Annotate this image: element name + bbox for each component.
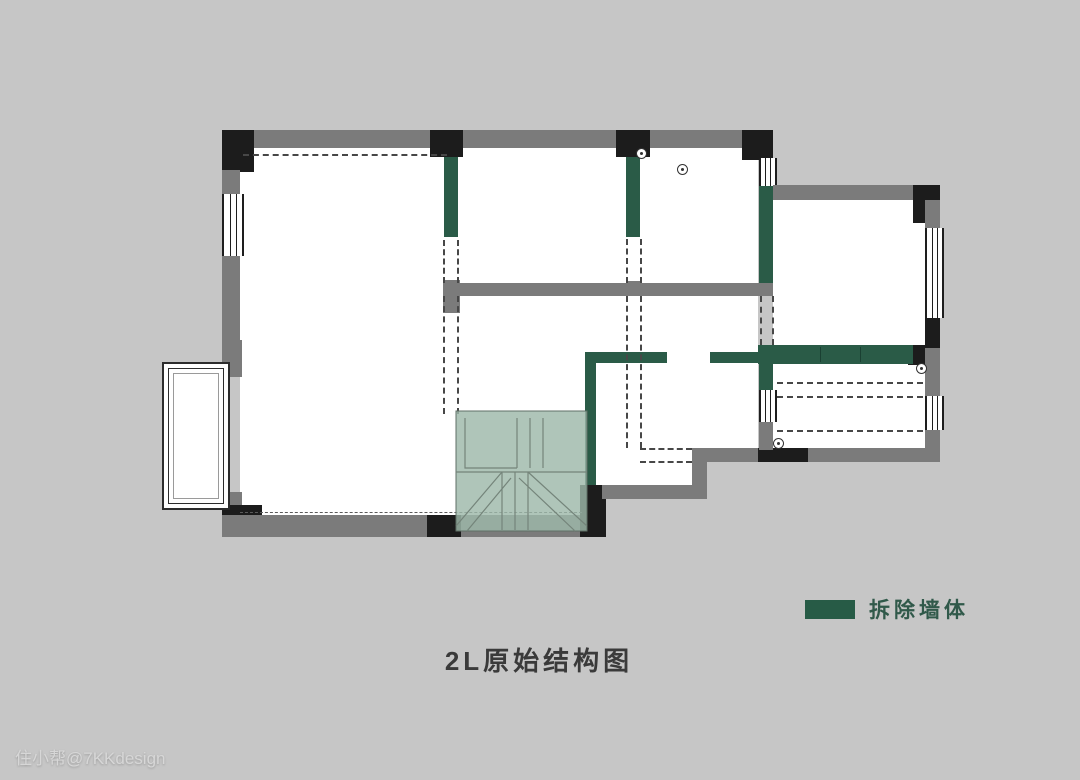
opening-dashed-1a — [443, 240, 445, 283]
floor-drain-icon — [677, 164, 688, 175]
floor-drain-icon — [916, 363, 927, 374]
demolish-wall-4 — [758, 345, 913, 364]
opening-dashed-2c — [626, 296, 628, 448]
step-wall-1 — [602, 485, 693, 499]
demolish-wall-swatch — [805, 600, 855, 619]
right-room-fill — [773, 200, 925, 448]
window-balcony-left — [759, 390, 777, 422]
legend-label: 拆除墙体 — [869, 594, 969, 624]
exterior-wall-top — [222, 130, 770, 148]
balcony-step-line-1 — [777, 382, 923, 384]
floor-plan-canvas: 拆除墙体 2L原始结构图 住小帮@7KKdesign — [0, 0, 1080, 780]
opening-dashed-1b — [457, 240, 459, 283]
right-wing-wall-top — [773, 185, 915, 200]
step-wall-3 — [705, 448, 760, 462]
interior-wall-main — [443, 283, 773, 296]
window-left — [222, 194, 244, 256]
opening-dashed-4b — [640, 461, 692, 463]
door-threshold — [626, 281, 640, 286]
demolish-wall-7 — [710, 352, 773, 363]
bay-window — [162, 362, 230, 510]
page-title: 2L原始结构图 — [394, 641, 684, 678]
demolish-wall-1 — [444, 157, 458, 237]
opening-dashed-4a — [640, 448, 692, 450]
exterior-wall-left — [222, 170, 240, 194]
opening-dashed-2d — [640, 296, 642, 448]
demolish-wall-2 — [626, 157, 640, 237]
watermark: 住小帮@7KKdesign — [15, 744, 166, 769]
column-right-mid — [925, 318, 940, 348]
window-balcony-right — [925, 396, 944, 430]
balcony-wall-left — [759, 422, 773, 450]
opening-dashed-2b — [640, 239, 642, 283]
column-balcony-left — [758, 448, 810, 462]
column-top-1 — [430, 130, 463, 157]
opening-dashed-2a — [626, 239, 628, 283]
balcony-wall-bottom — [808, 448, 940, 462]
opening-dashed-top — [243, 154, 447, 156]
opening-dashed-3a — [760, 296, 762, 345]
column-top-left — [222, 130, 254, 172]
opening-dashed-1d — [457, 296, 459, 414]
balcony-wall-right-2 — [925, 430, 940, 462]
window-right — [925, 228, 944, 318]
legend: 拆除墙体 — [805, 594, 969, 624]
floor-drain-icon — [636, 148, 647, 159]
window-top-right — [759, 158, 777, 188]
demolish-wall-4-joint-2 — [860, 347, 861, 362]
staircase — [455, 410, 588, 532]
floor-drain-icon — [773, 438, 784, 449]
demolish-wall-3 — [759, 186, 773, 285]
column-top-right — [742, 130, 773, 160]
balcony-step-line-3 — [777, 430, 923, 432]
balcony-wall-right-1 — [925, 348, 940, 396]
opening-dashed-3b — [772, 296, 774, 345]
opening-dashed-1c — [443, 296, 445, 414]
balcony-step-line-2 — [777, 396, 923, 398]
demolish-wall-4-joint — [820, 347, 821, 362]
exterior-wall-right-1 — [925, 200, 940, 228]
